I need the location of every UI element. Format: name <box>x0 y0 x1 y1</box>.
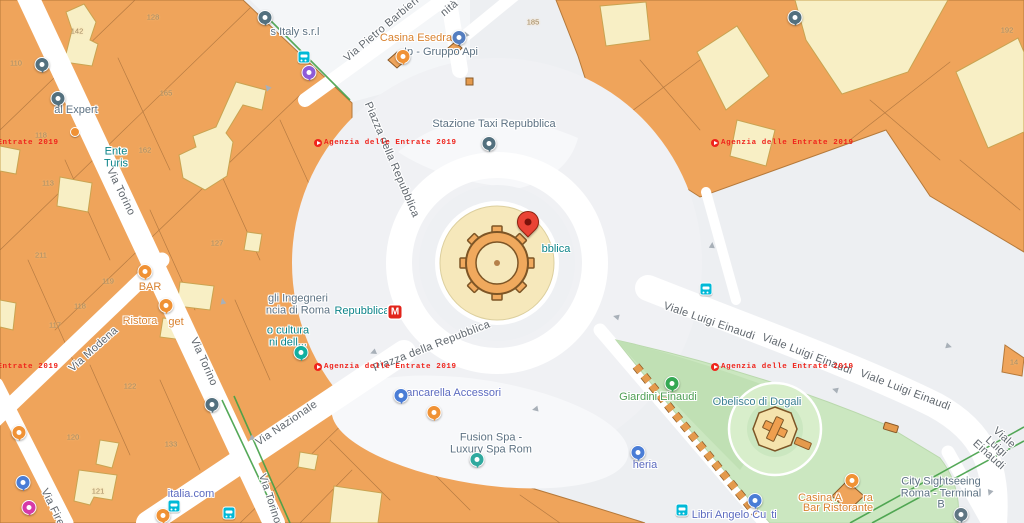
hotel-icon-2[interactable] <box>223 507 236 520</box>
metro-station-icon[interactable]: M <box>389 306 402 319</box>
shopping-pin-icon-heria[interactable] <box>631 445 646 460</box>
poi-label-casina-esedra[interactable]: Casina Esedra <box>380 33 452 45</box>
generic-pin-icon-1[interactable] <box>35 57 50 72</box>
watermark-agenzia-1: Agenzia delle Entrate 2019 <box>314 139 457 147</box>
generic-pin-icon-5[interactable] <box>205 397 220 412</box>
poi-label-metro-repubblica[interactable]: Repubblica <box>334 306 389 318</box>
poi-label-stazione-taxi[interactable]: Stazione Taxi Repubblica <box>432 119 555 131</box>
house-number: 120 <box>67 433 80 442</box>
poi-label-libri-b[interactable]: ti <box>771 510 777 522</box>
restaurant-pin-icon-casina-esedra[interactable] <box>396 49 411 64</box>
house-number: 14 <box>1010 358 1018 367</box>
purple-pin-icon[interactable] <box>302 65 317 80</box>
house-number: 128 <box>147 13 160 22</box>
generic-pin-icon-2[interactable] <box>51 91 66 106</box>
watermark-icon <box>314 139 322 147</box>
hotel-icon-3[interactable] <box>676 504 689 517</box>
poi-label-casina-bar-2[interactable]: Bar Ristorante <box>803 503 873 515</box>
house-number: 122 <box>124 382 137 391</box>
house-number: 185 <box>527 18 540 27</box>
hotel-icon-1[interactable] <box>168 500 181 513</box>
watermark-agenzia-5-partial: Agenzia delle Entrate 2019 <box>0 139 59 147</box>
restaurant-pin-icon-casina-bar[interactable] <box>845 473 860 488</box>
shopping-pin-icon-libri[interactable] <box>748 493 763 508</box>
generic-pin-icon-3[interactable] <box>258 10 273 25</box>
shopping-pin-icon-south-plaza[interactable] <box>427 405 442 420</box>
house-number: 192 <box>1001 26 1014 35</box>
house-number: 118 <box>35 131 47 140</box>
watermark-agenzia-6-partial: Agenzia delle Entrate 2019 <box>0 363 59 371</box>
house-number: 133 <box>165 440 178 449</box>
poi-label-italy-srl[interactable]: s Italy s.r.l <box>271 27 320 39</box>
poi-label-obelisco[interactable]: Obelisco di Dogali <box>713 397 802 409</box>
park-tree-pin-icon[interactable] <box>665 376 680 391</box>
house-number: 110 <box>10 59 22 68</box>
watermark-agenzia-4: Agenzia delle Entrate 2019 <box>711 363 854 371</box>
shopping-pin-icon-bottomleft[interactable] <box>16 475 31 490</box>
poi-label-ente-turismo[interactable]: Ente Turis <box>104 146 128 169</box>
fuel-pin-icon[interactable] <box>452 30 467 45</box>
poi-label-city-sightseeing[interactable]: City Sightseeing Roma - Terminal B <box>900 477 983 512</box>
poi-label-fusion-spa[interactable]: Fusion Spa - Luxury Spa Rom <box>450 432 532 455</box>
house-number: 165 <box>160 89 173 98</box>
house-number: 142 <box>71 27 84 36</box>
house-number: 119 <box>102 277 114 286</box>
house-number: 127 <box>211 239 224 248</box>
poi-label-ingegneri[interactable]: gli Ingegneri ncia di Roma <box>266 293 330 316</box>
poi-label-repubblica-fragment: bblica <box>542 244 571 256</box>
watermark-agenzia-3: Agenzia delle Entrate 2019 <box>314 363 457 371</box>
poi-label-giardini-einaudi[interactable]: Giardini Einaudi <box>619 392 697 404</box>
generic-pin-icon-4[interactable] <box>788 10 803 25</box>
house-number: 113 <box>42 179 54 188</box>
obelisk-building <box>753 407 797 451</box>
restaurant-pin-icon-ristorante[interactable] <box>159 298 174 313</box>
house-number: 117 <box>49 321 61 330</box>
map-canvas[interactable]: Via Torino Via Torino Via Torino Via Mod… <box>0 0 1024 523</box>
poi-label-ristorante-b[interactable]: get <box>168 317 183 329</box>
watermark-icon <box>314 363 322 371</box>
spa-pin-icon[interactable] <box>470 452 485 467</box>
restaurant-pin-icon-bottomleft[interactable] <box>12 425 27 440</box>
taxi-stand-pin-icon[interactable] <box>482 136 497 151</box>
fountain <box>460 226 534 300</box>
watermark-icon <box>711 139 719 147</box>
house-number: 211 <box>35 251 47 260</box>
sightseeing-pin-icon[interactable] <box>954 507 969 522</box>
shopping-pin-icon-bancarella[interactable] <box>394 388 409 403</box>
house-number: 162 <box>139 146 152 155</box>
magenta-pin-icon[interactable] <box>22 500 37 515</box>
watermark-icon <box>711 363 719 371</box>
culture-pin-icon[interactable] <box>294 345 309 360</box>
poi-label-bar[interactable]: BAR <box>139 282 162 294</box>
house-number: 118 <box>74 302 86 311</box>
restaurant-pin-icon-bar[interactable] <box>138 264 153 279</box>
poi-label-bancarella[interactable]: Bancarella Accessori <box>399 388 501 400</box>
poi-label-ip-gruppo-api[interactable]: Ip - Gruppo Api <box>404 47 478 59</box>
watermark-agenzia-2: Agenzia delle Entrate 2019 <box>711 139 854 147</box>
house-number: 121 <box>92 487 105 496</box>
transit-icon-2[interactable] <box>700 283 713 296</box>
orange-dot-poi-icon[interactable] <box>70 127 80 137</box>
poi-label-ristorante-a[interactable]: Ristora <box>123 316 158 328</box>
transit-icon-1[interactable] <box>298 51 311 64</box>
